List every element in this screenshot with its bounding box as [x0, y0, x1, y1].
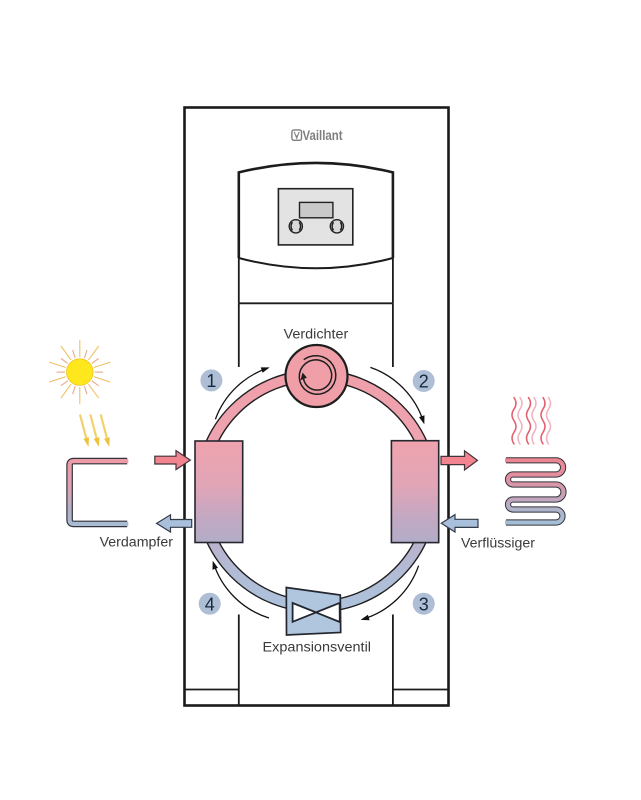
svg-text:2: 2: [419, 372, 429, 392]
svg-text:1: 1: [206, 371, 216, 391]
svg-text:Verdampfer: Verdampfer: [100, 535, 174, 550]
svg-text:Vaillant: Vaillant: [303, 128, 343, 143]
svg-text:Expansionsventil: Expansionsventil: [263, 640, 372, 655]
svg-text:Verflüssiger: Verflüssiger: [461, 536, 536, 551]
svg-text:3: 3: [419, 594, 429, 614]
svg-text:Verdichter: Verdichter: [284, 327, 349, 342]
svg-text:4: 4: [205, 594, 215, 614]
